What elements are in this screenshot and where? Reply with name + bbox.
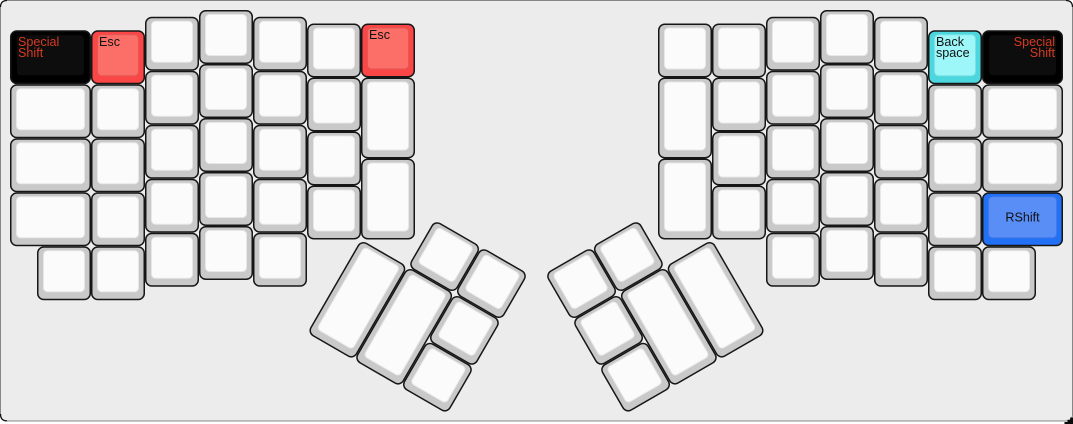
svg-text:Shift: Shift (18, 46, 44, 60)
svg-text:space: space (936, 46, 970, 60)
svg-text:Shift: Shift (1030, 46, 1056, 60)
svg-text:Esc: Esc (99, 35, 120, 49)
svg-text:RShift: RShift (1005, 210, 1040, 224)
svg-text:Esc: Esc (369, 28, 390, 42)
